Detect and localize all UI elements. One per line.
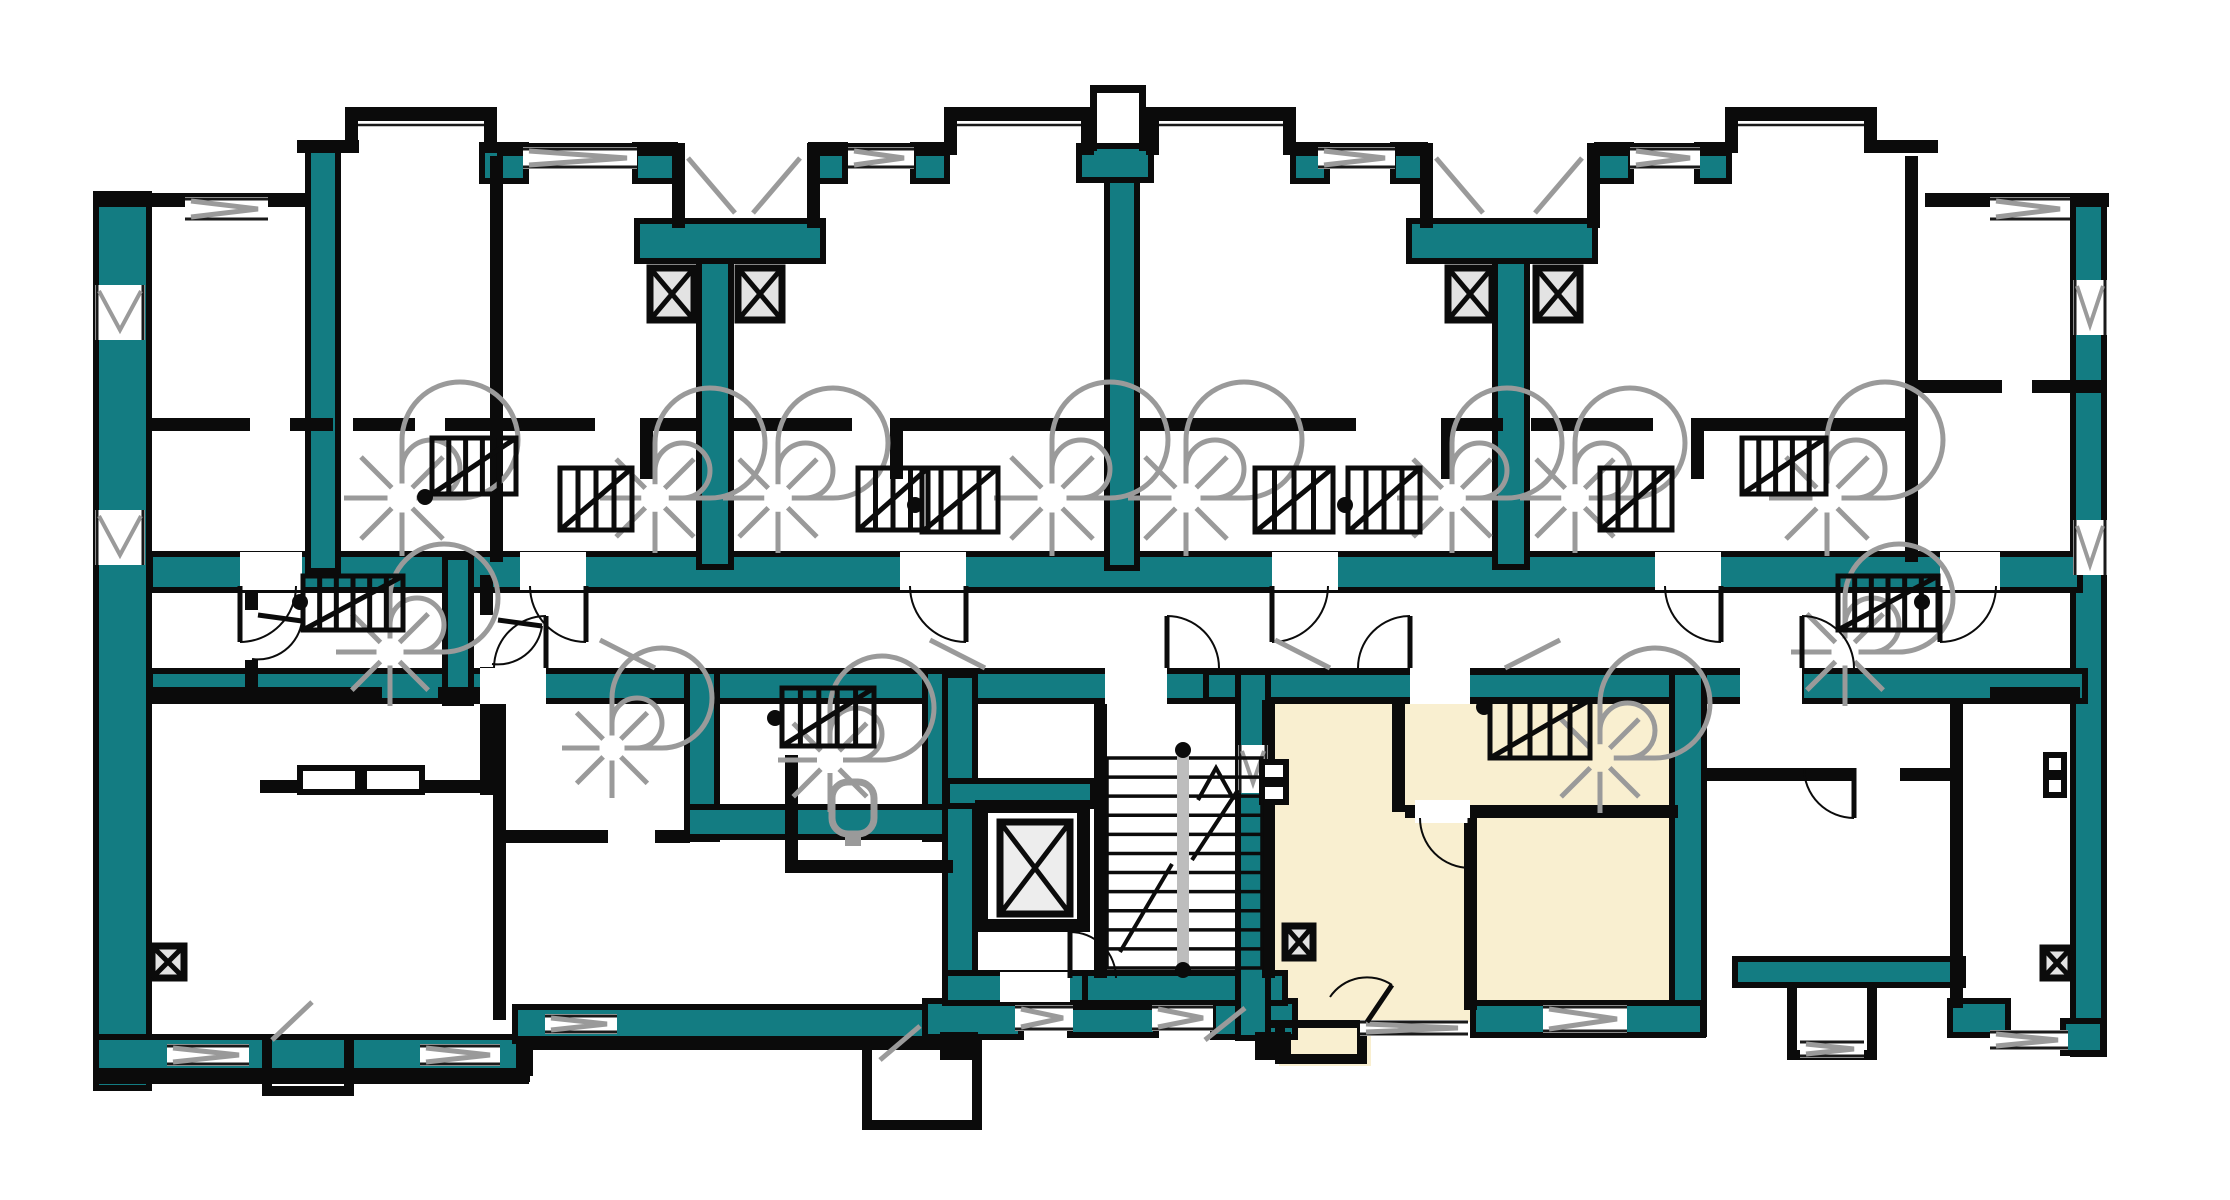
elevator-shaft — [1000, 822, 1070, 914]
apartment-hotspot-layer — [1238, 672, 1704, 1068]
spiral-staircases-layer — [336, 382, 1953, 813]
floor-plan-canvas — [0, 0, 2230, 1200]
building-floor-plan-svg — [0, 0, 2230, 1200]
apartment-unit-highlighted[interactable] — [1238, 672, 1704, 1068]
